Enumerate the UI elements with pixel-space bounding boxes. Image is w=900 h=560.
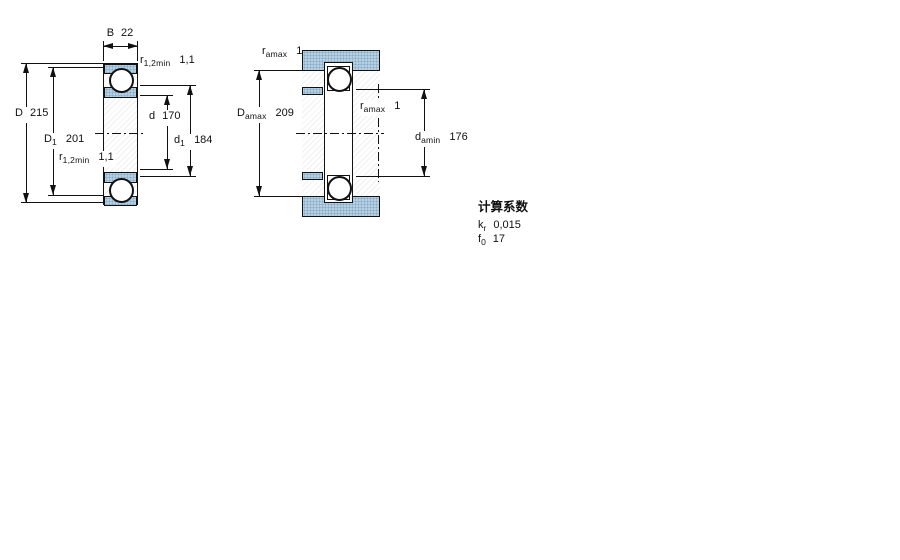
ext-line-Damax-bottom xyxy=(254,196,302,197)
dim-label-bore-diameter: d170 xyxy=(147,110,182,126)
dim-label-shoulder-inner: d1184 xyxy=(172,134,214,150)
axis-centerline xyxy=(95,133,145,134)
dim-label-shoulder-outer: D1201 xyxy=(42,133,86,149)
arrowhead xyxy=(23,63,29,73)
bearing-drawing-canvas: B22 r1,2min1,1 D215 D1201 d170 xyxy=(0,0,900,560)
arrowhead xyxy=(50,185,56,195)
ext-line-damin-bottom xyxy=(356,176,430,177)
arrowhead xyxy=(187,85,193,95)
dim-line-D1 xyxy=(53,67,54,195)
factor-kr: kr0,015 xyxy=(478,219,521,233)
ext-line-D-bottom xyxy=(21,202,105,203)
dim-label-housing-abutment: Damax209 xyxy=(235,107,296,123)
dim-label-shaft-abutment: damin176 xyxy=(413,131,470,147)
dim-label-fillet-mid: ramax1 xyxy=(358,100,402,116)
shoulder-centerline xyxy=(378,84,379,182)
arrowhead xyxy=(421,166,427,176)
dim-label-fillet-top: ramax1 xyxy=(262,45,302,61)
arrowhead xyxy=(187,166,193,176)
ball-top-right-figure xyxy=(327,67,352,92)
shaft-shoulder-bottom xyxy=(302,172,323,180)
ext-line-D1-top xyxy=(48,67,103,68)
dim-line-D xyxy=(26,63,27,203)
arrowhead xyxy=(164,95,170,105)
dim-line-d1 xyxy=(190,85,191,176)
dim-label-outer-diameter: D215 xyxy=(13,107,50,123)
ext-line-damin-top xyxy=(356,89,430,90)
ball-top xyxy=(109,68,134,93)
arrowhead xyxy=(103,43,113,49)
dim-label-r-bottom: r1,2min1,1 xyxy=(57,151,116,167)
axis-centerline-right xyxy=(296,133,384,134)
arrowhead xyxy=(256,70,262,80)
dim-label-r-top: r1,2min1,1 xyxy=(140,54,195,70)
arrowhead xyxy=(421,89,427,99)
arrowhead xyxy=(50,67,56,77)
ext-line-d1-bottom xyxy=(140,176,196,177)
ball-bottom-right-figure xyxy=(327,176,352,201)
calculation-factors-title: 计算系数 xyxy=(478,196,528,215)
arrowhead xyxy=(164,159,170,169)
arrowhead xyxy=(128,43,138,49)
ext-line-D1-bottom xyxy=(48,195,103,196)
ext-line-d-bottom xyxy=(140,169,173,170)
dim-label-width: B22 xyxy=(100,27,140,43)
ball-bottom xyxy=(109,178,134,203)
dim-line-d xyxy=(167,95,168,169)
shaft-shoulder-top xyxy=(302,87,323,95)
ext-line-D-top xyxy=(21,63,103,64)
arrowhead xyxy=(23,193,29,203)
dim-line-Damax xyxy=(259,70,260,196)
arrowhead xyxy=(256,186,262,196)
factor-f0: f017 xyxy=(478,233,505,247)
